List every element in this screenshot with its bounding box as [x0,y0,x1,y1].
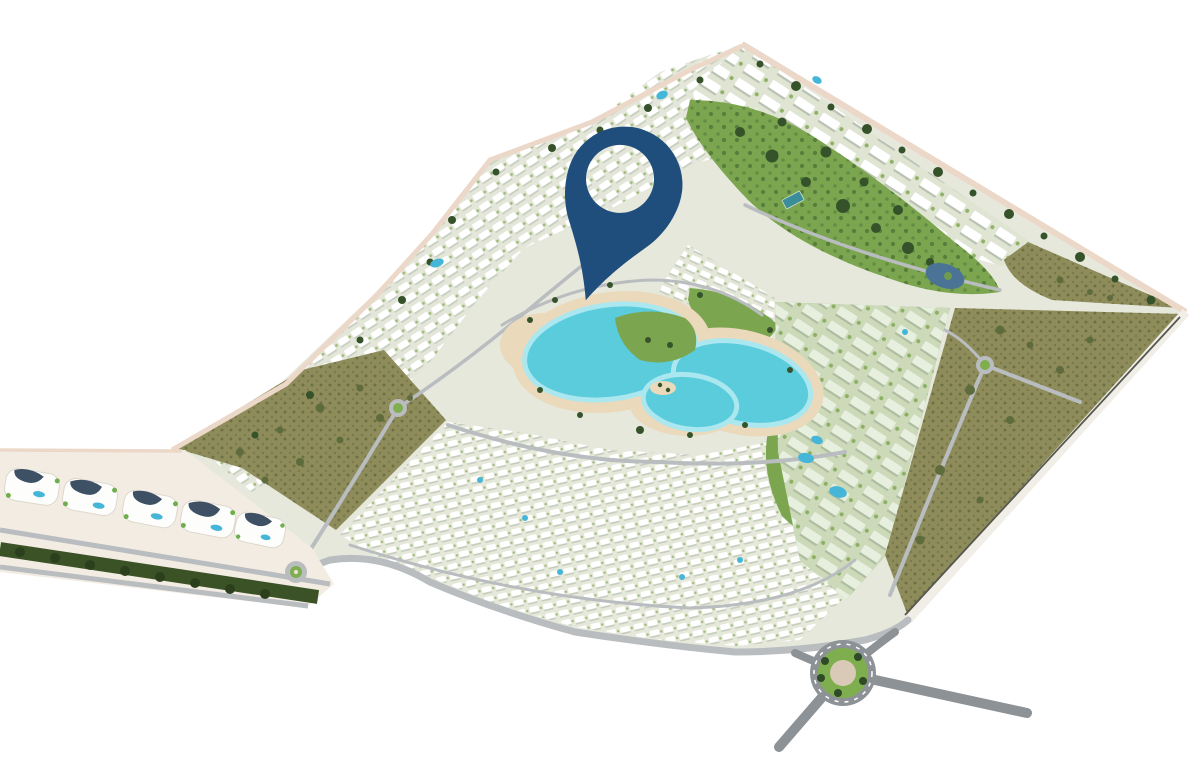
masterplan-screenshot [0,0,1197,767]
strip-top-edge [0,450,182,451]
masterplan-render [0,0,1197,767]
roundabout-main [810,640,876,706]
roundabout-small-mid [389,399,407,417]
lagoon-island [650,381,676,395]
pond-island [944,272,952,280]
roundabout-small-west [285,561,307,583]
roundabout-small-east [976,356,994,374]
